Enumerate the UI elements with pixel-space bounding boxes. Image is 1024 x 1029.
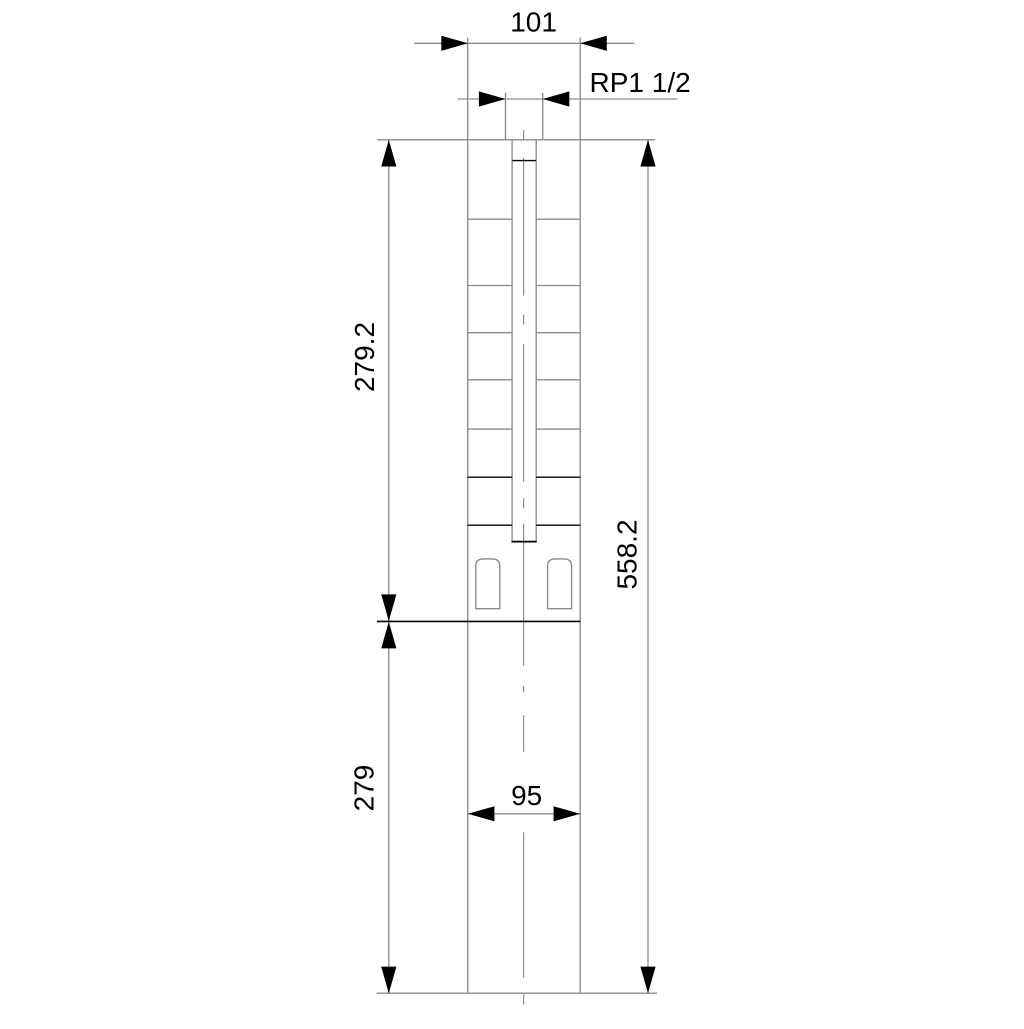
svg-text:558.2: 558.2 [612,519,643,589]
svg-text:279.2: 279.2 [349,322,380,392]
svg-text:RP1 1/2: RP1 1/2 [590,67,691,98]
svg-text:95: 95 [511,780,542,811]
svg-text:279: 279 [349,765,380,812]
svg-text:101: 101 [510,7,557,38]
